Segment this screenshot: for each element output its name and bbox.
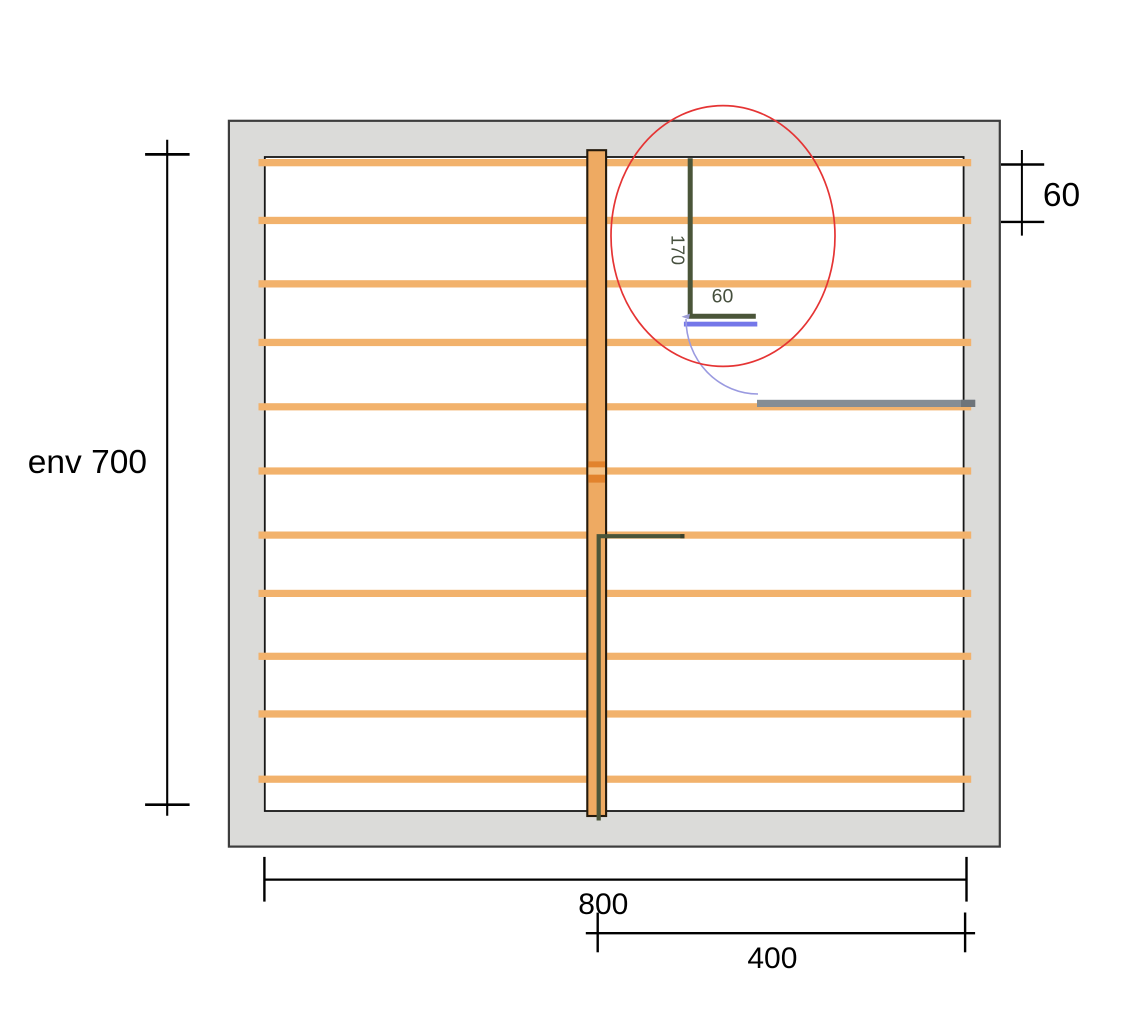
- svg-text:400: 400: [747, 942, 797, 975]
- svg-text:170: 170: [668, 235, 688, 265]
- svg-text:60: 60: [1043, 177, 1080, 214]
- svg-text:env 700: env 700: [28, 444, 147, 481]
- svg-text:60: 60: [712, 286, 734, 308]
- svg-text:800: 800: [578, 888, 628, 921]
